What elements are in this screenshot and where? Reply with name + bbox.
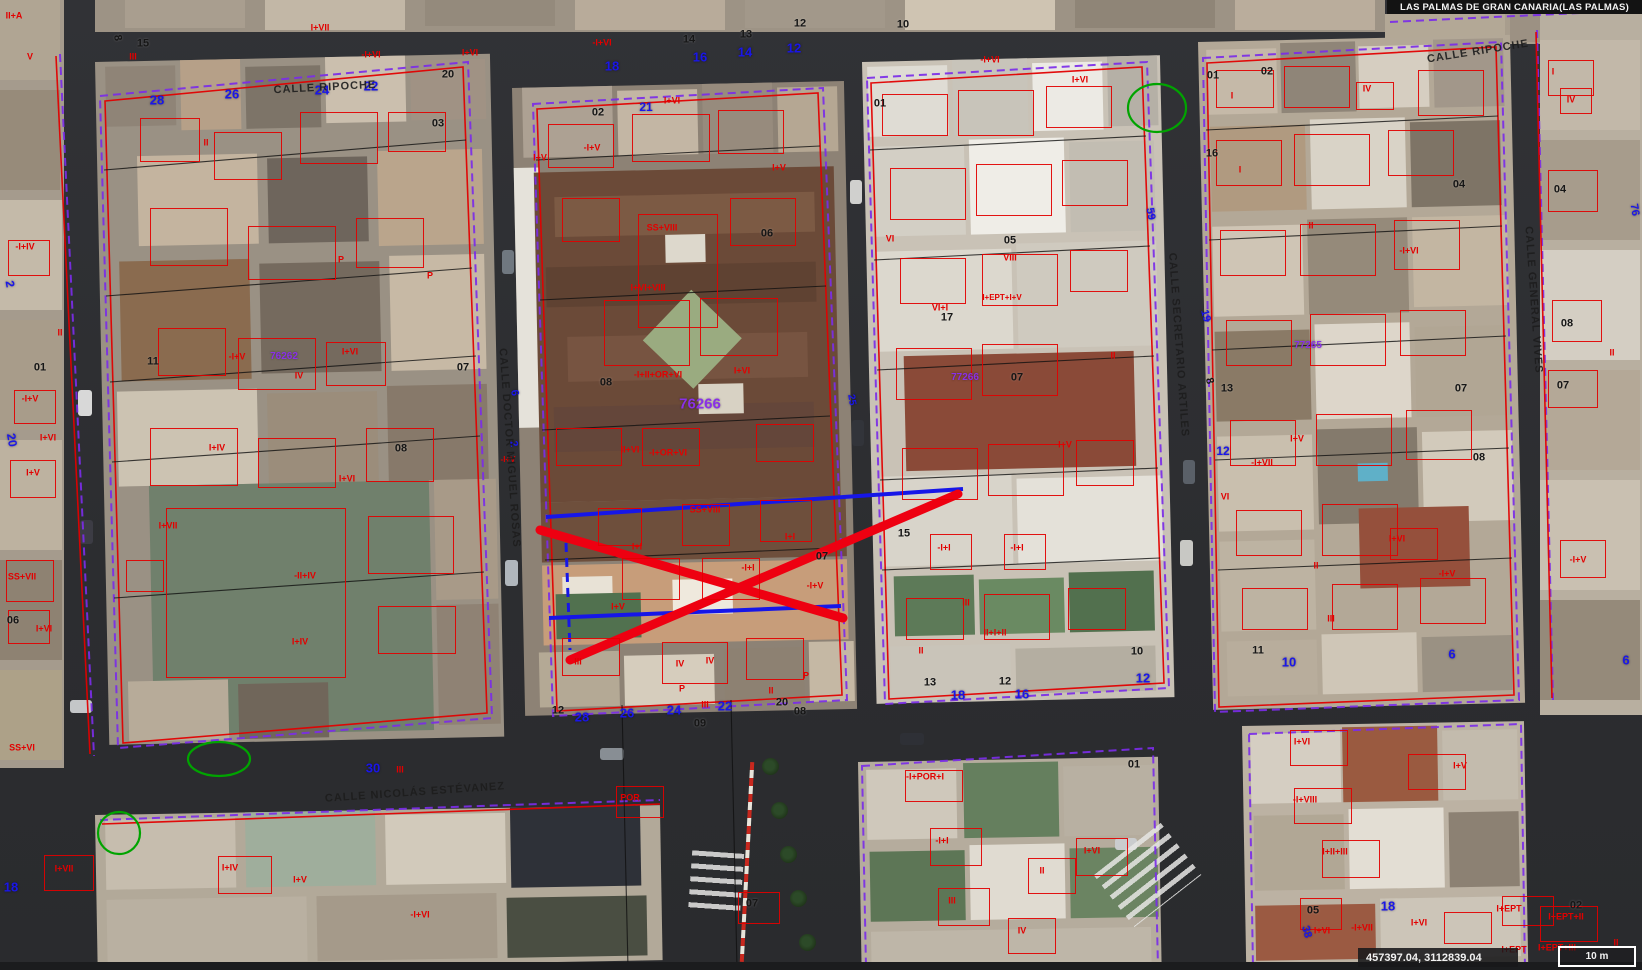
map-canvas[interactable]: II+AV815III2826242220I+VII-I+VII+VI-I+VI…: [0, 0, 1642, 970]
cursor-coordinates: 457397.04, 3112839.04: [1358, 948, 1518, 967]
cadastral-overlay: [0, 0, 1642, 970]
annotation-layer: [540, 489, 963, 660]
map-scale-bar: 10 m: [1558, 946, 1636, 967]
municipality-label: LAS PALMAS DE GRAN CANARIA(LAS PALMAS): [1387, 0, 1642, 14]
